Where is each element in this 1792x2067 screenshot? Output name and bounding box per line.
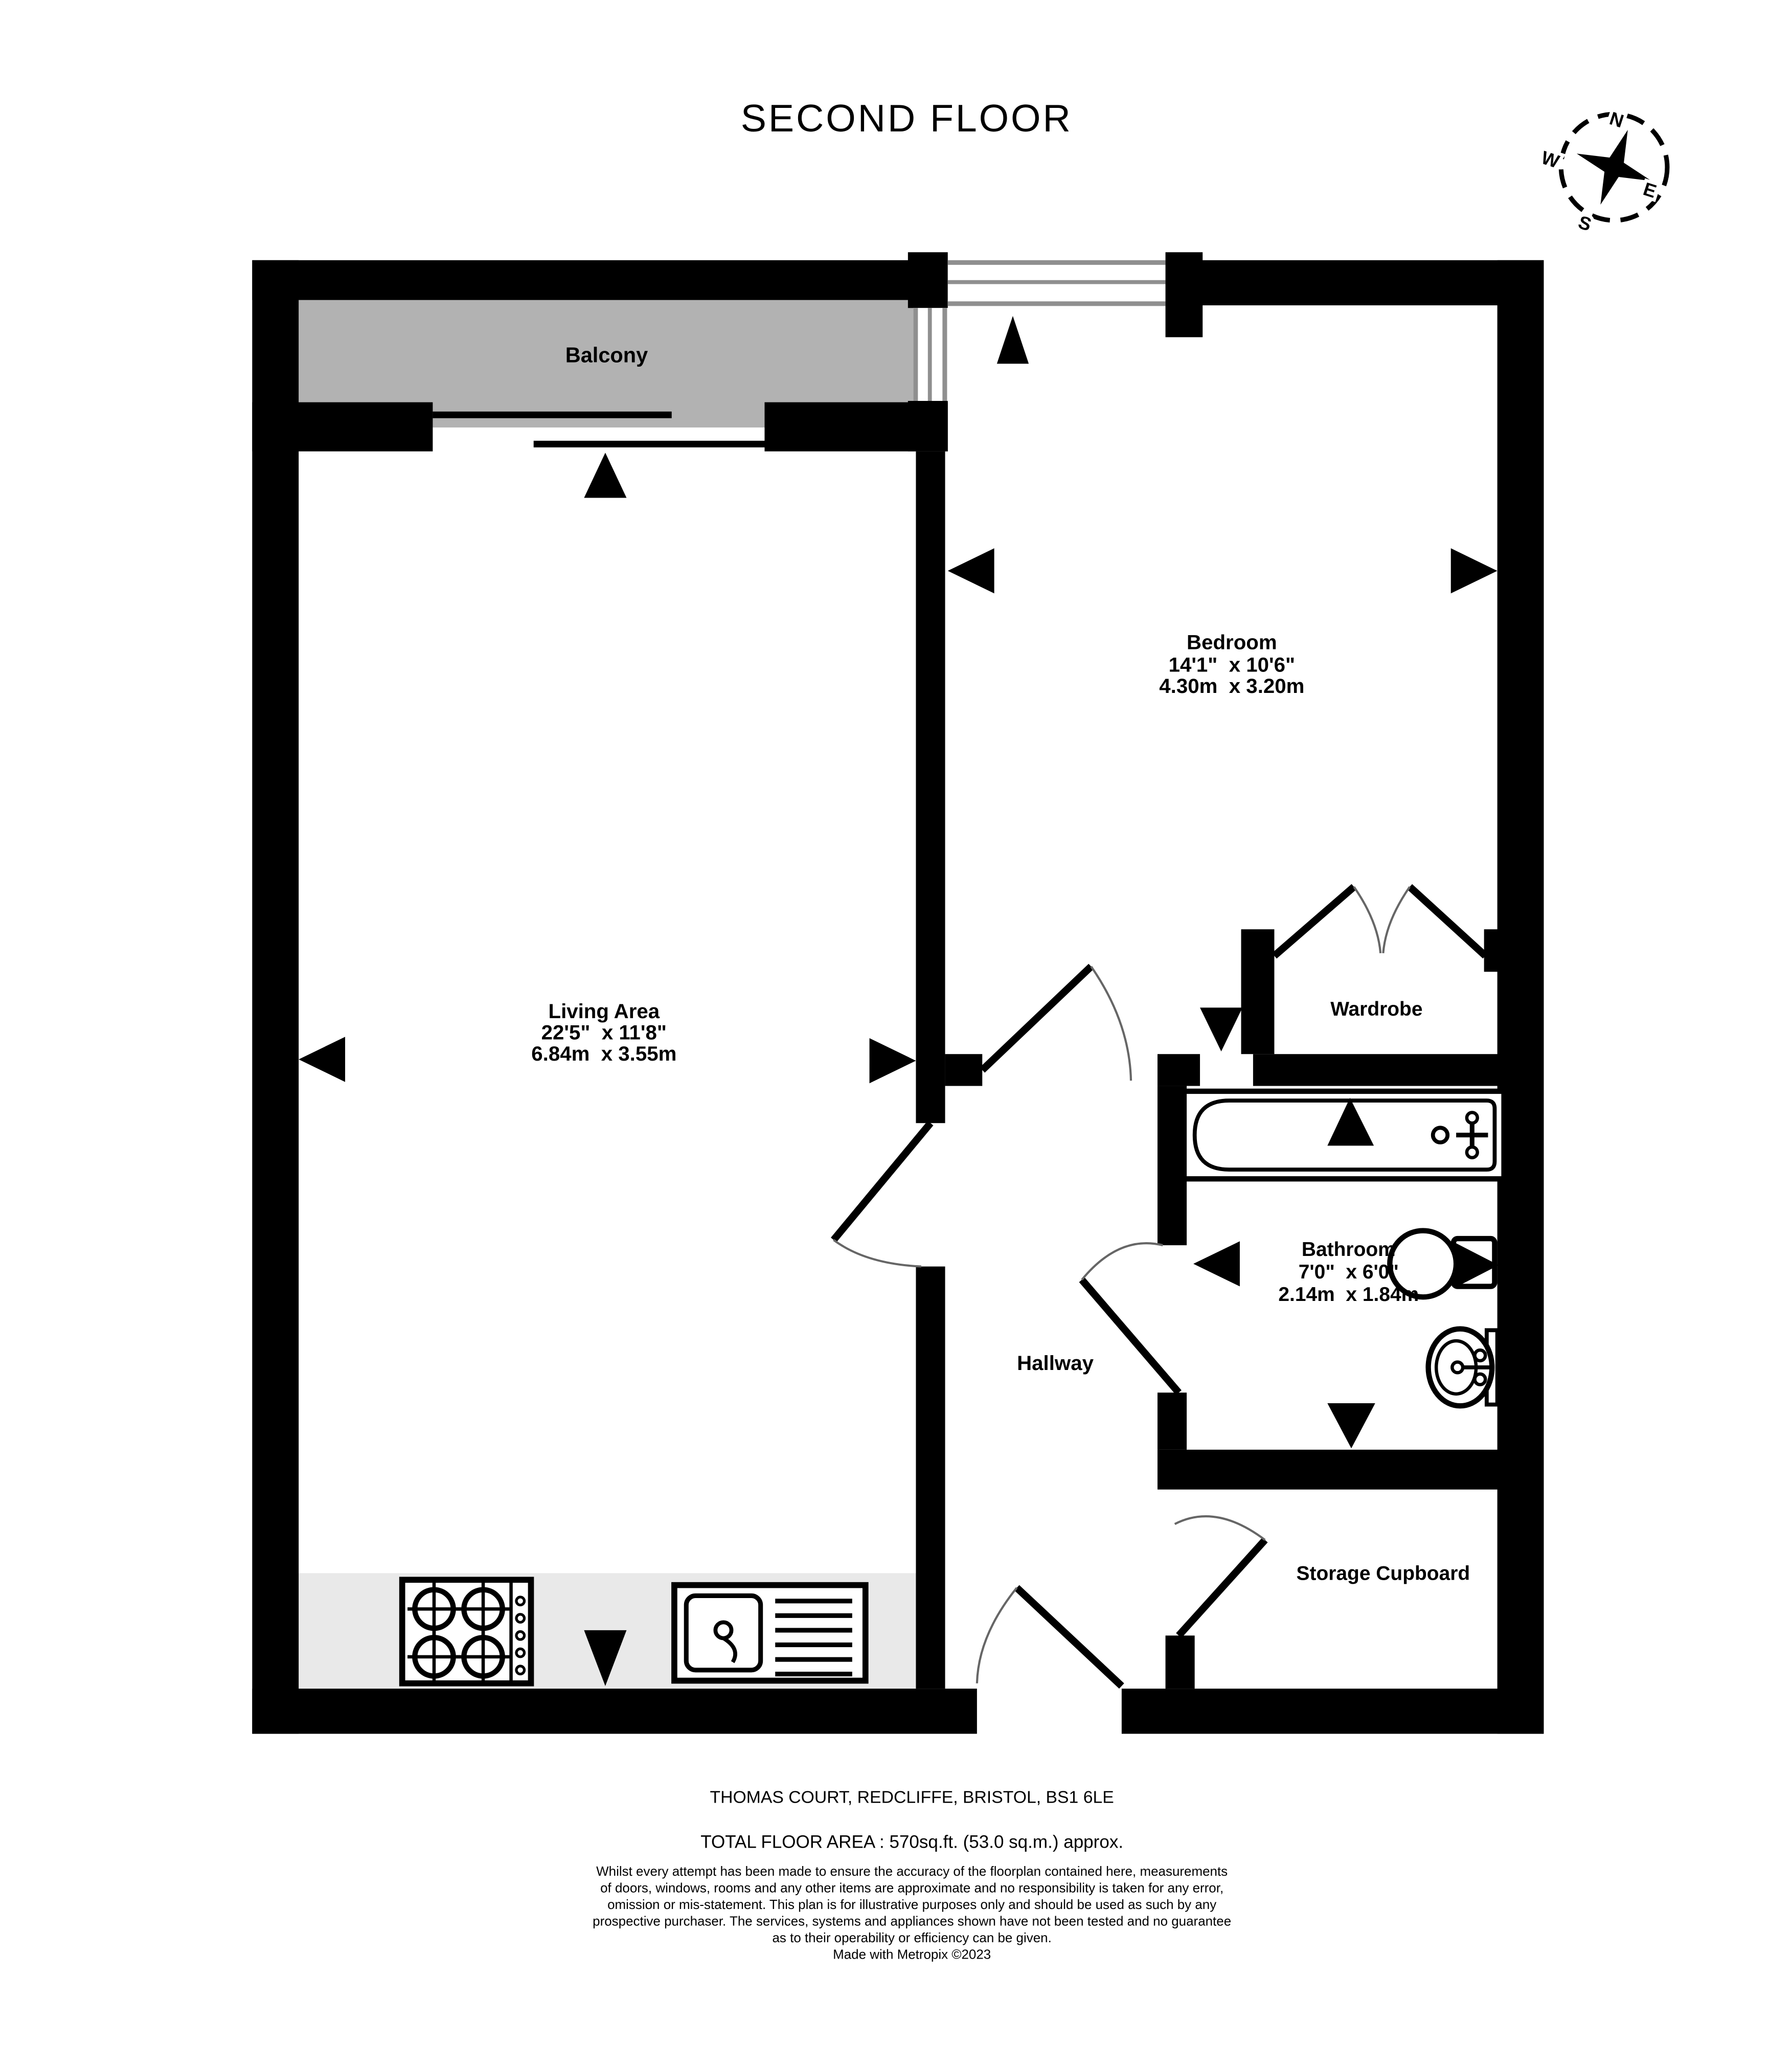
footer-disclaimer-line: omission or mis-statement. This plan is … (607, 1897, 1216, 1912)
wall-balcony-bottom-left (252, 402, 433, 452)
wardrobe-bifold-doors (1274, 887, 1485, 956)
footer-disclaimer-line: of doors, windows, rooms and any other i… (600, 1880, 1223, 1896)
marker-down-bathroom (1327, 1403, 1375, 1448)
wall-balcony-top (252, 260, 947, 300)
floorplan-canvas: SECOND FLOOR N E S W (0, 0, 1792, 2067)
living-hallway-door (833, 1123, 931, 1266)
sink-tap-knob (1475, 1350, 1485, 1361)
wall-bedroom-top (1166, 260, 1544, 305)
wall-bay-left-post (908, 252, 948, 308)
room-label-storage-cupboard: Storage Cupboard (1297, 1562, 1470, 1584)
wall-right-outer (1498, 260, 1544, 1734)
wall-bedroom-door-stub (945, 1054, 983, 1086)
storage-door-leaf (1179, 1540, 1265, 1635)
wall-bathroom-left-lower (1158, 1392, 1187, 1450)
kitchen-sink-tap (715, 1622, 731, 1638)
bathroom-door-arc (1082, 1243, 1163, 1279)
entrance-door-leaf (1017, 1588, 1122, 1686)
bathtub-tap-knob (1467, 1112, 1478, 1123)
marker-down-wardrobe (1200, 1007, 1242, 1051)
side-window-line (928, 308, 932, 401)
compass-south-label: S (1576, 211, 1594, 235)
bedroom-side-window (913, 308, 948, 401)
marker-up-balcony-window (584, 453, 626, 498)
compass-star-icon (1577, 130, 1651, 205)
bathroom-door (1082, 1243, 1179, 1392)
footer: THOMAS COURT, REDCLIFFE, BRISTOL, BS1 6L… (593, 1787, 1231, 1962)
wall-bottom-left (252, 1689, 977, 1734)
footer-disclaimer-line: prospective purchaser. The services, sys… (593, 1914, 1231, 1929)
room-label-living-area: Living Area (548, 1000, 660, 1023)
wall-bathroom-top-left (1158, 1054, 1200, 1086)
wardrobe-door-leaf (1410, 887, 1485, 956)
wardrobe-door-leaf (1274, 887, 1354, 956)
bay-window-line (948, 280, 1166, 284)
sink-tap-end (1452, 1362, 1463, 1373)
walls (252, 252, 1544, 1734)
bedroom-door-leaf (982, 967, 1091, 1070)
windows (913, 260, 1165, 401)
footer-credit: Made with Metropix ©2023 (833, 1946, 991, 1962)
footer-disclaimer-line: as to their operability or efficiency ca… (772, 1930, 1051, 1945)
sink-tap-knob (1475, 1374, 1485, 1385)
footer-disclaimer-line: Whilst every attempt has been made to en… (596, 1863, 1228, 1879)
floorplan-page: SECOND FLOOR N E S W (0, 0, 1792, 2067)
wall-bathroom-top-right (1253, 1054, 1511, 1086)
entrance-door (977, 1588, 1122, 1686)
wall-bottom-right (1122, 1689, 1544, 1734)
bedroom-door-arc (1091, 967, 1131, 1081)
living-door-leaf (833, 1123, 931, 1240)
room-label-bathroom: Bathroom (1302, 1239, 1396, 1261)
wall-storage-door-post (1166, 1635, 1195, 1689)
marker-up-bedroom-window (997, 316, 1029, 364)
wall-wardrobe-left (1241, 929, 1275, 1054)
room-label-bedroom: Bedroom (1187, 631, 1277, 654)
compass-rose-icon: N E S W (1539, 108, 1667, 235)
bedroom-bay-window (948, 260, 1166, 306)
living-window-line (534, 441, 767, 447)
marker-left-bedroom (948, 548, 994, 593)
bathroom-door-leaf (1082, 1280, 1179, 1393)
room-labels: Balcony Bedroom 14'1" x 10'6" 4.30m x 3.… (531, 343, 1470, 1585)
balcony-window-line (433, 412, 671, 418)
room-dim-imperial-living-area: 22'5" x 11'8" (541, 1021, 667, 1044)
footer-total-area: TOTAL FLOOR AREA : 570sq.ft. (53.0 sq.m.… (700, 1832, 1123, 1852)
footer-address: THOMAS COURT, REDCLIFFE, BRISTOL, BS1 6L… (710, 1787, 1114, 1807)
wardrobe-door-arc (1383, 887, 1410, 953)
bay-window-line (948, 301, 1166, 306)
room-dim-metric-bedroom: 4.30m x 3.20m (1159, 675, 1304, 698)
room-dim-metric-bathroom: 2.14m x 1.84m (1278, 1284, 1419, 1306)
room-dim-imperial-bathroom: 7'0" x 6'0" (1299, 1261, 1399, 1283)
wall-balcony-bottom-right (764, 402, 947, 452)
wardrobe-door-arc (1354, 887, 1380, 953)
side-window-line (913, 308, 918, 401)
wall-storage-top (1158, 1450, 1511, 1490)
room-label-wardrobe: Wardrobe (1330, 998, 1422, 1020)
wall-living-divider (916, 452, 945, 1124)
compass-west-label: W (1539, 147, 1562, 172)
side-window-line (942, 308, 947, 401)
bathtub-tap-knob (1467, 1147, 1478, 1158)
living-door-arc (833, 1240, 921, 1267)
bathtub-plug (1433, 1128, 1448, 1142)
storage-door-arc (1175, 1516, 1265, 1540)
room-dim-metric-living-area: 6.84m x 3.55m (531, 1042, 676, 1065)
wall-left-outer (252, 260, 299, 1734)
page-title: SECOND FLOOR (741, 97, 1073, 140)
bedroom-door (982, 967, 1131, 1081)
entrance-door-arc (977, 1588, 1017, 1683)
wall-hallway-left (916, 1267, 945, 1689)
wall-wardrobe-right-post (1484, 929, 1511, 972)
marker-left-living (299, 1037, 345, 1082)
compass-north-label: N (1607, 108, 1626, 132)
marker-left-bathroom (1193, 1241, 1240, 1286)
room-label-balcony: Balcony (565, 343, 648, 367)
room-dim-imperial-bedroom: 14'1" x 10'6" (1169, 654, 1295, 677)
room-label-hallway: Hallway (1017, 1352, 1094, 1375)
bay-window-line (948, 260, 1166, 265)
marker-right-bedroom (1451, 548, 1498, 593)
storage-door (1175, 1516, 1265, 1635)
marker-right-living (870, 1038, 916, 1083)
